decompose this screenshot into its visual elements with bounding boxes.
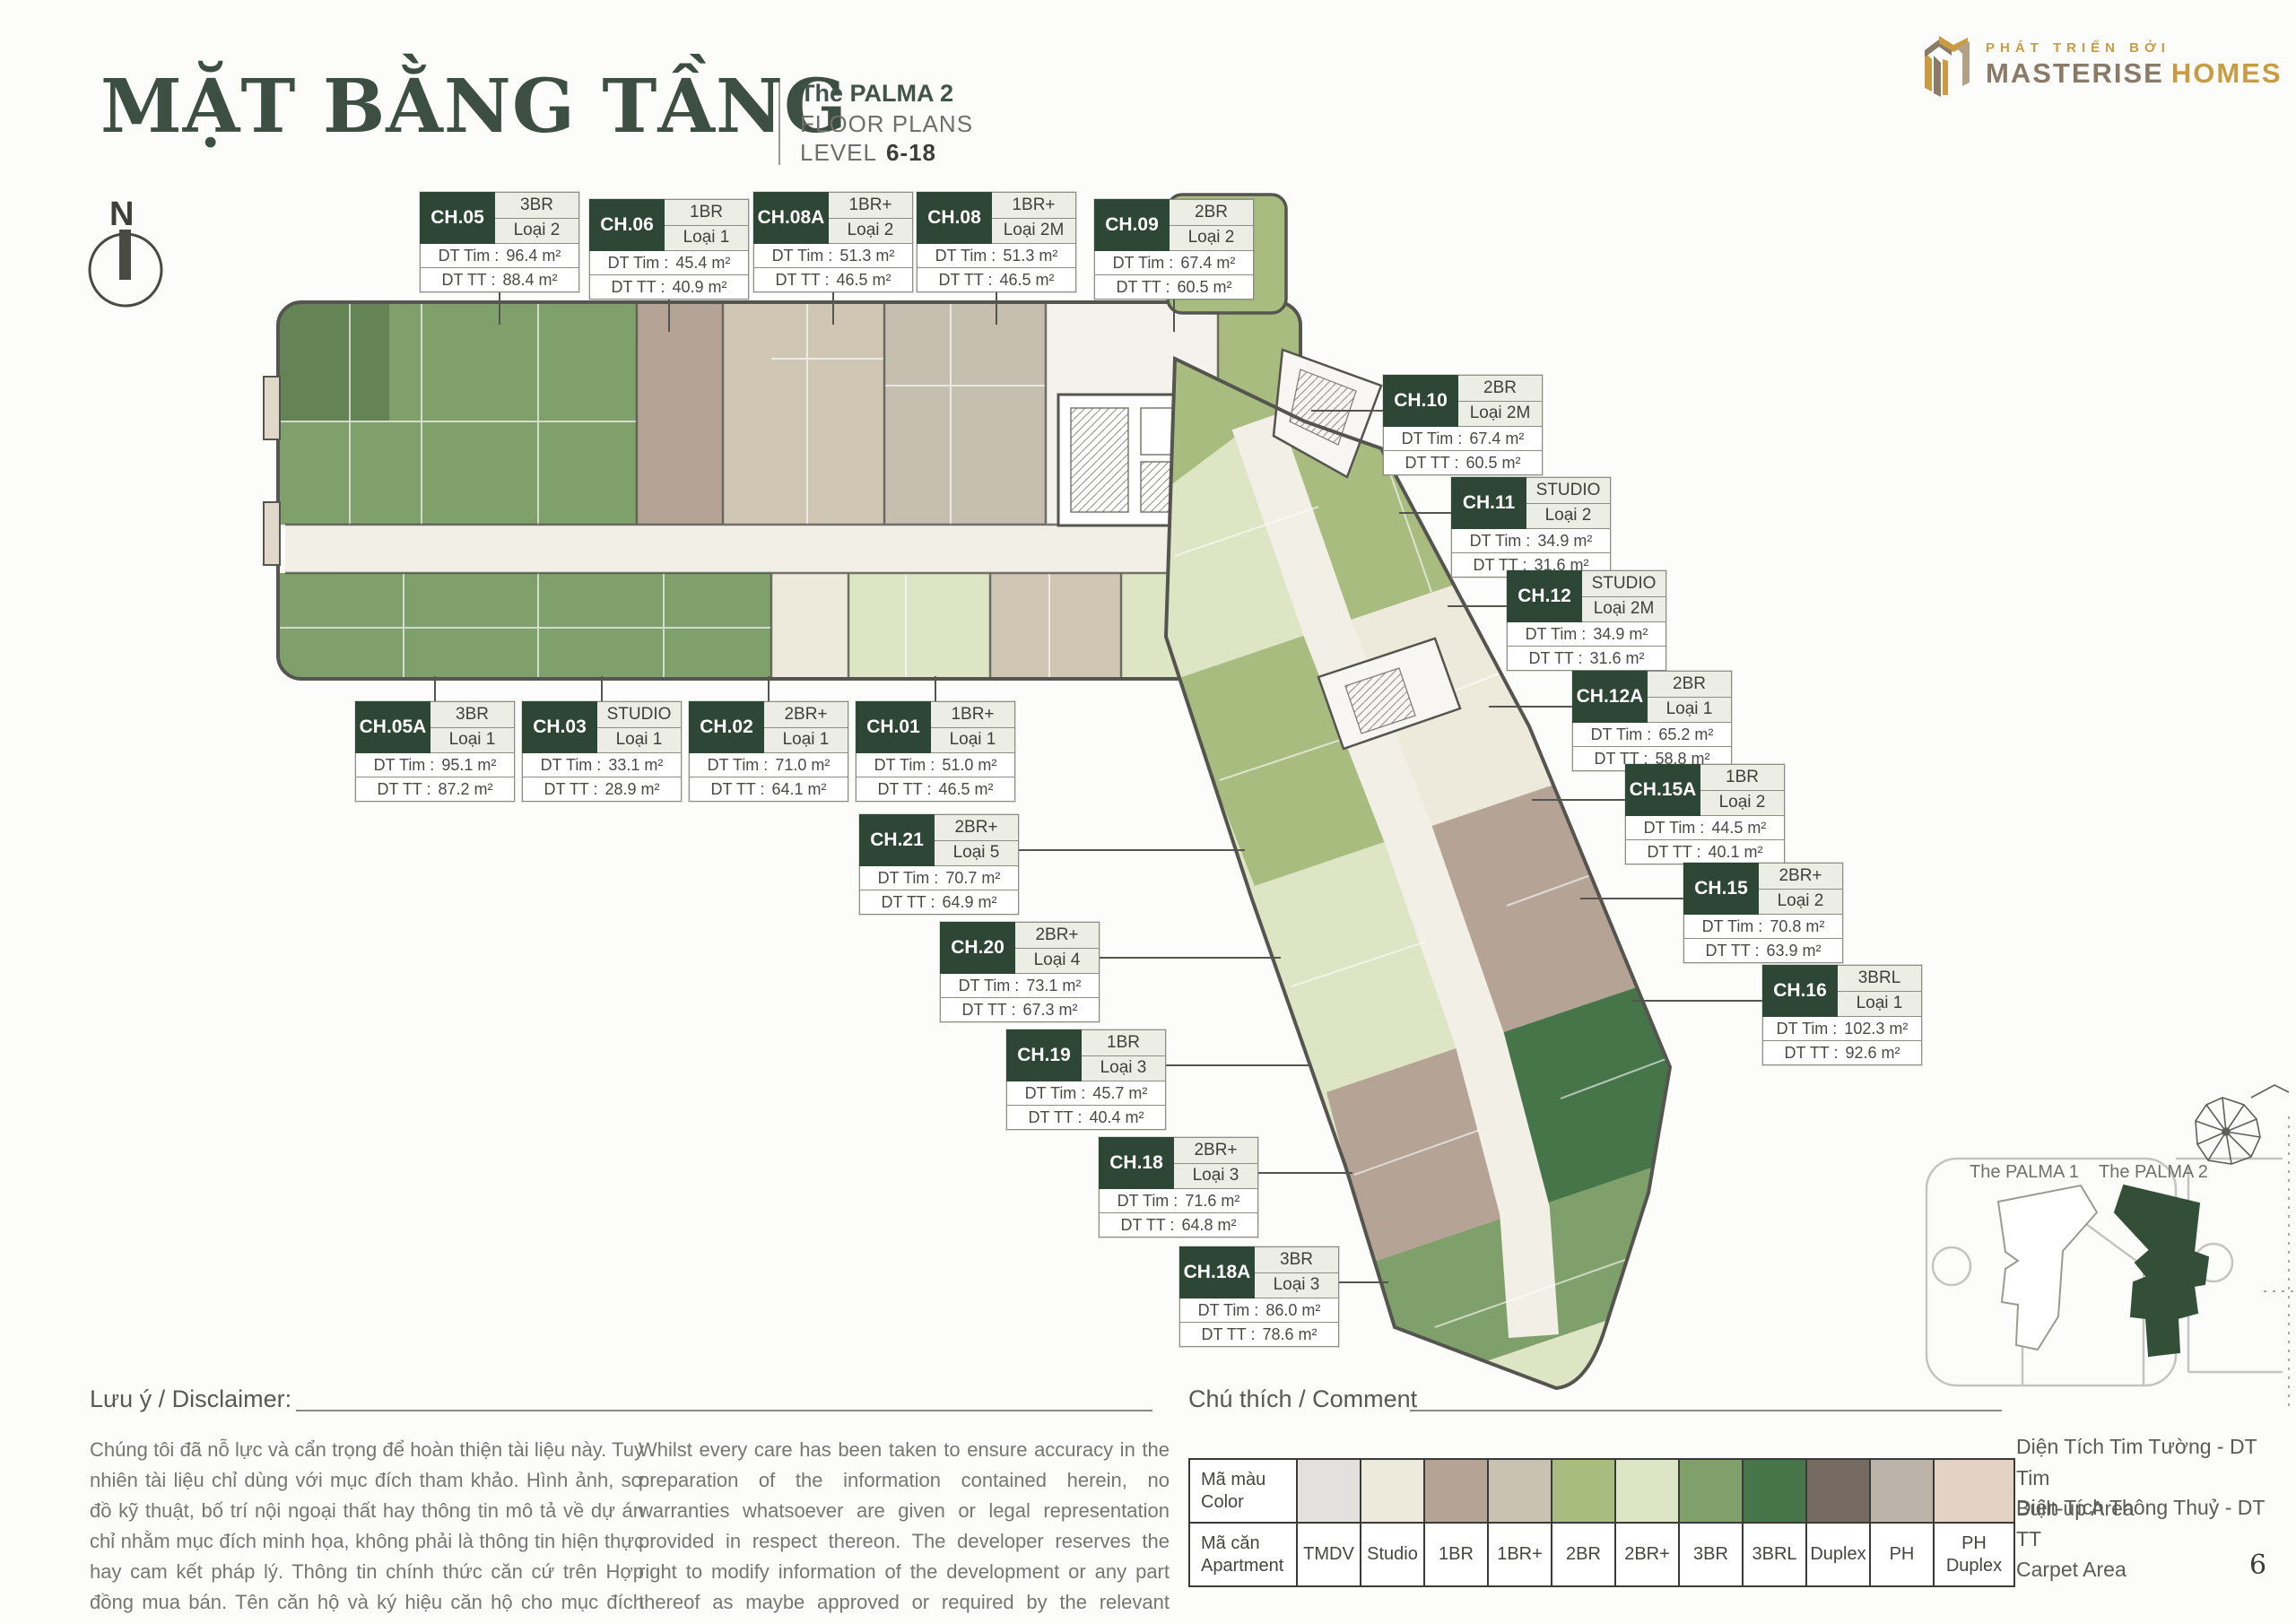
unit-label-header: CH.202BR+Loại 4 [940, 922, 1100, 974]
unit-type-block: 1BR+Loại 2 [829, 192, 913, 244]
unit-variant: Loại 1 [430, 728, 514, 753]
unit-variant: Loại 2M [992, 219, 1075, 244]
unit-label-CH.01: CH.011BR+Loại 1DT Tim :51.0 m²DT TT :46.… [856, 701, 1015, 802]
unit-type-block: 3BRLoại 3 [1255, 1246, 1339, 1298]
disclaimer-rule [296, 1410, 1152, 1411]
dt-tim-value: 102.3 m² [1844, 1020, 1908, 1038]
unit-dt-tim-row: DT Tim :34.9 m² [1451, 529, 1611, 553]
unit-label-header: CH.102BRLoại 2M [1383, 375, 1543, 427]
unit-type-block: 2BRLoại 2 [1170, 199, 1254, 251]
unit-code: CH.06 [589, 199, 665, 251]
dt-tt-value: 46.5 m² [836, 271, 891, 290]
dt-tt-value: 46.5 m² [999, 271, 1054, 290]
dt-tt-label: DT TT : [775, 271, 829, 290]
unit-dt-tim-row: DT Tim :33.1 m² [522, 753, 682, 777]
unit-label-CH.15: CH.152BR+Loại 2DT Tim :70.8 m²DT TT :63.… [1683, 863, 1843, 963]
unit-type: 2BR+ [1174, 1138, 1257, 1164]
unit-dt-tim-row: DT Tim :67.4 m² [1094, 251, 1254, 275]
unit-code: CH.10 [1383, 375, 1458, 427]
unit-type-block: 1BRLoại 3 [1082, 1029, 1166, 1081]
legend-apartment-row-label: Mã cănApartment [1190, 1524, 1298, 1587]
unit-type-block: 1BRLoại 2 [1700, 764, 1785, 816]
legend-heading: Chú thích / Comment [1188, 1385, 1417, 1413]
unit-label-CH.05A: CH.05A3BRLoại 1DT Tim :95.1 m²DT TT :87.… [355, 701, 515, 802]
dt-tt-value: 64.8 m² [1181, 1216, 1236, 1235]
unit-type: 1BR+ [829, 193, 912, 219]
unit-type: 1BR [1082, 1030, 1165, 1056]
unit-dt-tt-row: DT TT :88.4 m² [420, 268, 579, 292]
unit-dt-tim-row: DT Tim :34.9 m² [1507, 622, 1666, 647]
dt-tim-label: DT Tim : [772, 247, 833, 265]
dt-tim-value: 86.0 m² [1265, 1301, 1320, 1320]
unit-dt-tim-row: DT Tim :70.7 m² [859, 866, 1019, 890]
dt-tim-value: 34.9 m² [1593, 625, 1648, 644]
dt-tim-label: DT Tim : [935, 247, 996, 265]
unit-label-header: CH.011BR+Loại 1 [856, 701, 1015, 753]
unit-dt-tt-row: DT TT :46.5 m² [917, 268, 1076, 292]
unit-type-block: STUDIOLoại 2M [1582, 570, 1666, 622]
unit-dt-tt-row: DT TT :40.4 m² [1006, 1106, 1166, 1130]
unit-dt-tt-row: DT TT :60.5 m² [1383, 451, 1543, 475]
unit-label-header: CH.11STUDIOLoại 2 [1451, 477, 1611, 529]
dt-tt-label: DT TT : [961, 1001, 1015, 1020]
dt-tt-value: 78.6 m² [1262, 1325, 1317, 1344]
unit-variant: Loại 2 [495, 219, 578, 244]
dt-tt-label: DT TT : [1201, 1325, 1255, 1344]
locator-minimap [1926, 1085, 2296, 1406]
dt-tt-value: 28.9 m² [604, 780, 659, 799]
dt-tt-label: DT TT : [1705, 942, 1759, 960]
dt-tim-label: DT Tim : [374, 756, 435, 775]
unit-label-CH.08: CH.081BR+Loại 2MDT Tim :51.3 m²DT TT :46… [917, 192, 1076, 292]
unit-dt-tt-row: DT TT :46.5 m² [753, 268, 913, 292]
unit-type-block: 2BRLoại 2M [1458, 375, 1543, 427]
dt-tim-value: 33.1 m² [608, 756, 663, 775]
unit-code: CH.18A [1179, 1246, 1255, 1298]
dt-tt-label: DT TT : [611, 278, 665, 297]
compass-icon [90, 230, 161, 306]
unit-code: CH.15 [1683, 863, 1759, 915]
unit-dt-tim-row: DT Tim :45.7 m² [1006, 1081, 1166, 1106]
unit-label-header: CH.18A3BRLoại 3 [1179, 1246, 1339, 1298]
unit-type: 2BR [1648, 672, 1731, 698]
unit-type-block: 2BR+Loại 4 [1015, 922, 1100, 974]
unit-dt-tt-row: DT TT :28.9 m² [522, 777, 682, 802]
unit-code: CH.20 [940, 922, 1015, 974]
dt-tim-label: DT Tim : [439, 247, 500, 265]
unit-label-CH.06: CH.061BRLoại 1DT Tim :45.4 m²DT TT :40.9… [589, 199, 749, 300]
unit-code: CH.09 [1094, 199, 1170, 251]
dt-tim-value: 44.5 m² [1711, 819, 1766, 838]
dt-tim-value: 51.0 m² [942, 756, 996, 775]
unit-variant: Loại 3 [1082, 1056, 1165, 1081]
project-name: The PALMA 2 [800, 79, 973, 109]
unit-variant: Loại 3 [1255, 1273, 1338, 1298]
unit-code: CH.15A [1625, 764, 1700, 816]
dt-tim-value: 96.4 m² [506, 247, 561, 265]
unit-label-header: CH.12STUDIOLoại 2M [1507, 570, 1666, 622]
minimap-tree-decor [2196, 1085, 2289, 1164]
unit-label-CH.21: CH.212BR+Loại 5DT Tim :70.7 m²DT TT :64.… [859, 814, 1019, 915]
unit-code: CH.05 [420, 192, 495, 244]
dt-tt-label: DT TT : [1116, 278, 1170, 297]
unit-type: STUDIO [1526, 478, 1610, 504]
dt-tt-value: 40.1 m² [1708, 843, 1762, 862]
unit-type: 1BR+ [931, 702, 1014, 728]
dt-tim-label: DT Tim : [1591, 725, 1652, 744]
legend-label-ph-duplex: PH Duplex [1935, 1524, 2015, 1587]
legend-swatch-ph-duplex [1935, 1460, 2015, 1524]
dt-tt-value: 87.2 m² [438, 780, 492, 799]
unit-dt-tim-row: DT Tim :73.1 m² [940, 974, 1100, 998]
unit-type: 3BR [495, 193, 578, 219]
unit-dt-tim-row: DT Tim :102.3 m² [1762, 1017, 1922, 1041]
unit-type-block: 3BRLLoại 1 [1838, 965, 1922, 1017]
unit-variant: Loại 5 [935, 841, 1018, 866]
minimap-roads [1926, 1159, 2283, 1385]
unit-dt-tim-row: DT Tim :51.0 m² [856, 753, 1015, 777]
unit-variant: Loại 2 [1526, 504, 1610, 529]
dt-tim-value: 45.7 m² [1092, 1084, 1147, 1103]
legend-swatch-1br [1425, 1460, 1489, 1524]
dt-tt-label: DT TT : [377, 780, 430, 799]
unit-label-header: CH.081BR+Loại 2M [917, 192, 1076, 244]
unit-code: CH.18 [1099, 1137, 1174, 1189]
legend-rule [1410, 1410, 2002, 1411]
minimap-palma1-outline [1998, 1185, 2097, 1350]
unit-variant: Loại 3 [1174, 1164, 1257, 1189]
unit-label-header: CH.191BRLoại 3 [1006, 1029, 1166, 1081]
unit-variant: Loại 1 [764, 728, 848, 753]
legend-swatch-2br+ [1616, 1460, 1680, 1524]
dt-tim-label: DT Tim : [1402, 430, 1463, 448]
unit-code: CH.02 [689, 701, 764, 753]
dt-tim-value: 71.0 m² [775, 756, 830, 775]
dt-tim-label: DT Tim : [608, 254, 669, 273]
dt-tt-value: 64.9 m² [942, 893, 996, 912]
unit-type: 3BRL [1838, 966, 1921, 992]
masterise-homes-logo: PHÁT TRIỂN BỞI MASTERISEHOMES [1921, 32, 2283, 97]
unit-variant: Loại 2 [1759, 890, 1842, 915]
unit-code: CH.01 [856, 701, 931, 753]
unit-dt-tim-row: DT Tim :44.5 m² [1625, 816, 1785, 840]
dt-tim-value: 67.4 m² [1469, 430, 1524, 448]
unit-label-header: CH.061BRLoại 1 [589, 199, 749, 251]
unit-dt-tim-row: DT Tim :51.3 m² [753, 244, 913, 268]
unit-variant: Loại 2 [1700, 791, 1784, 816]
unit-label-header: CH.03STUDIOLoại 1 [522, 701, 682, 753]
dt-tim-label: DT Tim : [1198, 1301, 1259, 1320]
unit-type: 2BR [1170, 200, 1253, 226]
dt-tt-value: 63.9 m² [1766, 942, 1821, 960]
unit-variant: Loại 1 [665, 226, 748, 251]
unit-dt-tim-row: DT Tim :51.3 m² [917, 244, 1076, 268]
dt-tim-value: 70.7 m² [945, 869, 1000, 888]
dt-tt-label: DT TT : [1784, 1044, 1838, 1063]
legend-swatch-ph [1871, 1460, 1935, 1524]
unit-variant: Loại 1 [597, 728, 681, 753]
unit-label-CH.19: CH.191BRLoại 3DT Tim :45.7 m²DT TT :40.4… [1006, 1029, 1166, 1130]
dt-tim-label: DT Tim : [874, 756, 935, 775]
dt-tt-value: 92.6 m² [1845, 1044, 1900, 1063]
unit-dt-tim-row: DT Tim :67.4 m² [1383, 427, 1543, 451]
legend-label-1br: 1BR [1425, 1524, 1489, 1587]
dt-tim-label: DT Tim : [1118, 1192, 1178, 1211]
unit-label-header: CH.092BRLoại 2 [1094, 199, 1254, 251]
dt-tt-label: DT TT : [1028, 1108, 1082, 1127]
unit-type: 2BR+ [935, 815, 1018, 841]
dt-tt-value: 60.5 m² [1465, 454, 1520, 473]
developer-tagline: PHÁT TRIỂN BỞI [1986, 40, 2283, 56]
minimap-palma2-label: The PALMA 2 [2099, 1162, 2208, 1183]
unit-label-CH.18A: CH.18A3BRLoại 3DT Tim :86.0 m²DT TT :78.… [1179, 1246, 1339, 1347]
dt-tt-value: 67.3 m² [1022, 1001, 1077, 1020]
unit-label-header: CH.163BRLLoại 1 [1762, 965, 1922, 1017]
disclaimer-text-en: Whilst every care has been taken to ensu… [639, 1435, 1170, 1624]
level-value: 6-18 [886, 139, 936, 166]
unit-type-block: 2BR+Loại 2 [1759, 863, 1843, 915]
unit-type: 2BR+ [1015, 923, 1099, 949]
minimap-palma2-building [2115, 1185, 2208, 1356]
legend-swatch-3brl [1744, 1460, 1807, 1524]
dt-tim-label: DT Tim : [1526, 625, 1587, 644]
legend-swatch-3br [1680, 1460, 1744, 1524]
dt-tim-label: DT Tim : [1113, 254, 1174, 273]
dt-tt-value: 46.5 m² [938, 780, 993, 799]
unit-variant: Loại 4 [1015, 949, 1099, 974]
legend-swatch-duplex [1807, 1460, 1871, 1524]
unit-dt-tim-row: DT Tim :70.8 m² [1683, 915, 1843, 939]
unit-type: 2BR [1458, 376, 1542, 402]
unit-type-block: STUDIOLoại 1 [597, 701, 682, 753]
unit-label-header: CH.05A3BRLoại 1 [355, 701, 515, 753]
dt-tim-value: 45.4 m² [675, 254, 730, 273]
dt-tim-value: 71.6 m² [1185, 1192, 1239, 1211]
dt-tt-label: DT TT : [544, 780, 597, 799]
legend-label-3brl: 3BRL [1744, 1524, 1807, 1587]
unit-type-block: 2BRLoại 1 [1648, 671, 1732, 723]
unit-code: CH.08 [917, 192, 992, 244]
unit-type-block: 2BR+Loại 5 [935, 814, 1019, 866]
unit-dt-tt-row: DT TT :78.6 m² [1179, 1323, 1339, 1347]
dt-tt-label: DT TT : [1647, 843, 1700, 862]
dt-tt-label: DT TT : [938, 271, 992, 290]
dt-tim-label: DT Tim : [1777, 1020, 1838, 1038]
legend-label-1br+: 1BR+ [1489, 1524, 1552, 1587]
unit-label-CH.12: CH.12STUDIOLoại 2MDT Tim :34.9 m²DT TT :… [1507, 570, 1666, 671]
unit-dt-tt-row: DT TT :87.2 m² [355, 777, 515, 802]
unit-type-block: 3BRLoại 2 [495, 192, 579, 244]
unit-type: 2BR+ [764, 702, 848, 728]
dt-tt-label: DT TT : [1405, 454, 1458, 473]
dt-tim-label: DT Tim : [1470, 532, 1531, 551]
unit-label-header: CH.152BR+Loại 2 [1683, 863, 1843, 915]
unit-variant: Loại 1 [931, 728, 1014, 753]
floor-plans-label: FLOOR PLANS [800, 109, 973, 139]
unit-label-CH.15A: CH.15A1BRLoại 2DT Tim :44.5 m²DT TT :40.… [1625, 764, 1785, 864]
unit-variant: Loại 2 [829, 219, 912, 244]
unit-type-block: 1BR+Loại 2M [992, 192, 1076, 244]
dt-tim-label: DT Tim : [541, 756, 602, 775]
unit-type-block: 2BR+Loại 1 [764, 701, 848, 753]
unit-type: STUDIO [597, 702, 681, 728]
unit-type-block: 3BRLoại 1 [430, 701, 515, 753]
legend-label-studio: Studio [1361, 1524, 1425, 1587]
dt-tim-value: 34.9 m² [1537, 532, 1592, 551]
unit-type: 1BR [665, 200, 748, 226]
unit-dt-tt-row: DT TT :64.9 m² [859, 890, 1019, 915]
unit-dt-tt-row: DT TT :64.8 m² [1099, 1213, 1258, 1238]
dt-tim-value: 51.3 m² [1003, 247, 1057, 265]
dt-tt-value: 40.9 m² [672, 278, 726, 297]
unit-type: STUDIO [1582, 571, 1665, 597]
dt-tt-value: 31.6 m² [1589, 649, 1644, 668]
disclaimer-text-vi: Chúng tôi đã nỗ lực và cẩn trọng để hoàn… [90, 1435, 644, 1624]
unit-code: CH.16 [1762, 965, 1838, 1017]
unit-label-CH.16: CH.163BRLLoại 1DT Tim :102.3 m²DT TT :92… [1762, 965, 1922, 1065]
legend-label-duplex: Duplex [1807, 1524, 1871, 1587]
unit-label-CH.18: CH.182BR+Loại 3DT Tim :71.6 m²DT TT :64.… [1099, 1137, 1258, 1238]
dt-tim-value: 95.1 m² [441, 756, 496, 775]
unit-dt-tt-row: DT TT :31.6 m² [1507, 647, 1666, 671]
disclaimer-heading: Lưu ý / Disclaimer: [90, 1385, 291, 1413]
legend-label-3br: 3BR [1680, 1524, 1744, 1587]
unit-dt-tt-row: DT TT :46.5 m² [856, 777, 1015, 802]
unit-code: CH.03 [522, 701, 597, 753]
dt-tim-label: DT Tim : [1644, 819, 1705, 838]
brand-name: MASTERISEHOMES [1986, 57, 2283, 90]
unit-dt-tim-row: DT Tim :45.4 m² [589, 251, 749, 275]
unit-type-block: 1BR+Loại 1 [931, 701, 1015, 753]
unit-label-CH.02: CH.022BR+Loại 1DT Tim :71.0 m²DT TT :64.… [689, 701, 848, 802]
unit-label-CH.03: CH.03STUDIOLoại 1DT Tim :33.1 m²DT TT :2… [522, 701, 682, 802]
dt-tim-label: DT Tim : [1025, 1084, 1086, 1103]
dt-tt-label: DT TT : [441, 271, 495, 290]
unit-dt-tt-row: DT TT :64.1 m² [689, 777, 848, 802]
legend-label-tmdv: TMDV [1298, 1524, 1361, 1587]
unit-code: CH.11 [1451, 477, 1526, 529]
dt-tim-value: 67.4 m² [1180, 254, 1235, 273]
unit-label-CH.10: CH.102BRLoại 2MDT Tim :67.4 m²DT TT :60.… [1383, 375, 1543, 475]
dt-tim-value: 51.3 m² [839, 247, 894, 265]
compass-north-label: N [109, 195, 134, 234]
subtitle-block: The PALMA 2 FLOOR PLANS LEVEL6-18 [800, 79, 973, 168]
legend-swatch-tmdv [1298, 1460, 1361, 1524]
legend-color-row-label: Mã màuColor [1190, 1460, 1298, 1524]
dt-tim-value: 70.8 m² [1770, 917, 1824, 936]
unit-code: CH.12 [1507, 570, 1582, 622]
unit-code: CH.19 [1006, 1029, 1082, 1081]
unit-label-CH.11: CH.11STUDIOLoại 2DT Tim :34.9 m²DT TT :3… [1451, 477, 1611, 578]
unit-type: 2BR+ [1759, 864, 1842, 890]
legend-label-2br: 2BR [1552, 1524, 1616, 1587]
minimap-palma1-label: The PALMA 1 [1970, 1162, 2079, 1183]
legend-label-ph: PH [1871, 1524, 1935, 1587]
dt-tt-value: 88.4 m² [502, 271, 557, 290]
unit-variant: Loại 1 [1648, 698, 1731, 723]
dt-tt-label: DT TT : [1528, 649, 1582, 668]
unit-dt-tt-row: DT TT :63.9 m² [1683, 939, 1843, 963]
unit-label-header: CH.022BR+Loại 1 [689, 701, 848, 753]
unit-dt-tim-row: DT Tim :71.6 m² [1099, 1189, 1258, 1213]
legend-swatch-1br+ [1489, 1460, 1552, 1524]
masterise-logo-icon [1921, 32, 1973, 97]
unit-variant: Loại 1 [1838, 992, 1921, 1017]
unit-dt-tim-row: DT Tim :86.0 m² [1179, 1298, 1339, 1323]
unit-code: CH.12A [1572, 671, 1648, 723]
dt-tt-value: 60.5 m² [1177, 278, 1231, 297]
floor-plan-page: MẶT BẰNG TẦNG The PALMA 2 FLOOR PLANS LE… [0, 0, 2296, 1624]
unit-dt-tim-row: DT Tim :95.1 m² [355, 753, 515, 777]
legend-swatch-studio [1361, 1460, 1425, 1524]
unit-dt-tt-row: DT TT :67.3 m² [940, 998, 1100, 1022]
unit-dt-tim-row: DT Tim :65.2 m² [1572, 723, 1732, 747]
dt-tt-value: 64.1 m² [771, 780, 826, 799]
dt-tt-label: DT TT : [710, 780, 764, 799]
dt-tim-label: DT Tim : [878, 869, 939, 888]
unit-label-CH.08A: CH.08A1BR+Loại 2DT Tim :51.3 m²DT TT :46… [753, 192, 913, 292]
unit-type: 3BR [1255, 1247, 1338, 1273]
unit-dt-tt-row: DT TT :92.6 m² [1762, 1041, 1922, 1065]
unit-label-CH.12A: CH.12A2BRLoại 1DT Tim :65.2 m²DT TT :58.… [1572, 671, 1732, 771]
unit-type: 1BR [1700, 765, 1784, 791]
unit-label-header: CH.182BR+Loại 3 [1099, 1137, 1258, 1189]
unit-dt-tim-row: DT Tim :71.0 m² [689, 753, 848, 777]
unit-dt-tt-row: DT TT :60.5 m² [1094, 275, 1254, 300]
dt-tim-label: DT Tim : [708, 756, 769, 775]
page-title: MẶT BẰNG TẦNG [100, 65, 848, 149]
unit-dt-tt-row: DT TT :40.9 m² [589, 275, 749, 300]
unit-label-CH.20: CH.202BR+Loại 4DT Tim :73.1 m²DT TT :67.… [940, 922, 1100, 1022]
unit-variant: Loại 2 [1170, 226, 1253, 251]
unit-label-CH.05: CH.053BRLoại 2DT Tim :96.4 m²DT TT :88.4… [420, 192, 579, 292]
unit-code: CH.08A [753, 192, 829, 244]
unit-type: 1BR+ [992, 193, 1075, 219]
unit-variant: Loại 2M [1458, 402, 1542, 427]
dt-tim-label: DT Tim : [1702, 917, 1763, 936]
unit-label-header: CH.15A1BRLoại 2 [1625, 764, 1785, 816]
legend-table: Mã màuColorMã cănApartmentTMDVStudio1BR1… [1188, 1458, 2015, 1587]
unit-label-header: CH.12A2BRLoại 1 [1572, 671, 1732, 723]
page-number: 6 [2249, 1550, 2266, 1581]
logo-text: PHÁT TRIỂN BỞI MASTERISEHOMES [1986, 40, 2283, 90]
dt-tt-value: 40.4 m² [1089, 1108, 1144, 1127]
unit-type-block: 1BRLoại 1 [665, 199, 749, 251]
dt-tt-label: DT TT : [881, 893, 935, 912]
unit-dt-tt-row: DT TT :40.1 m² [1625, 840, 1785, 864]
unit-type-block: STUDIOLoại 2 [1526, 477, 1611, 529]
unit-variant: Loại 2M [1582, 597, 1665, 622]
unit-code: CH.21 [859, 814, 935, 866]
unit-label-header: CH.08A1BR+Loại 2 [753, 192, 913, 244]
unit-label-header: CH.212BR+Loại 5 [859, 814, 1019, 866]
dt-tim-label: DT Tim : [959, 977, 1020, 995]
unit-code: CH.05A [355, 701, 430, 753]
legend-swatch-2br [1552, 1460, 1616, 1524]
dt-tt-label: DT TT : [877, 780, 931, 799]
unit-type: 3BR [430, 702, 514, 728]
dt-tim-value: 73.1 m² [1026, 977, 1081, 995]
level-label: LEVEL6-18 [800, 138, 973, 168]
unit-dt-tim-row: DT Tim :96.4 m² [420, 244, 579, 268]
unit-label-header: CH.053BRLoại 2 [420, 192, 579, 244]
dt-tt-label: DT TT : [1120, 1216, 1174, 1235]
legend-label-2br+: 2BR+ [1616, 1524, 1680, 1587]
unit-label-CH.09: CH.092BRLoại 2DT Tim :67.4 m²DT TT :60.5… [1094, 199, 1254, 300]
dt-tim-value: 65.2 m² [1658, 725, 1713, 744]
unit-type-block: 2BR+Loại 3 [1174, 1137, 1258, 1189]
